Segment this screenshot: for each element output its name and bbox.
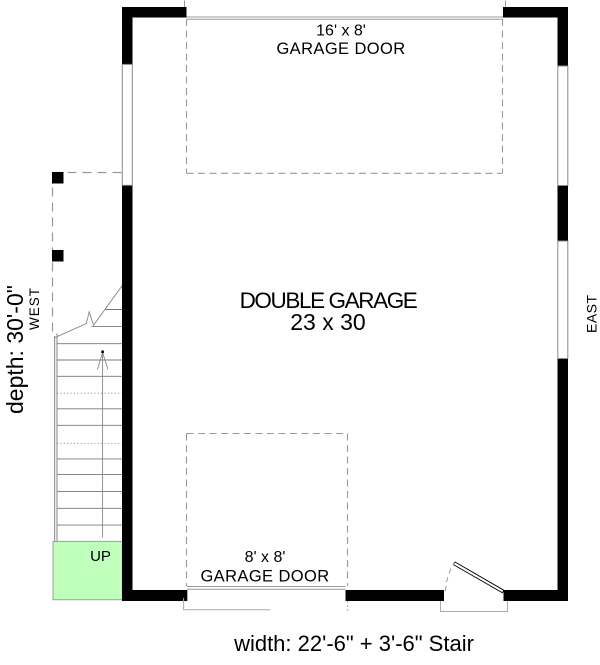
svg-text:UP: UP [90, 548, 111, 565]
svg-text:8' x 8': 8' x 8' [245, 549, 286, 566]
svg-text:GARAGE DOOR: GARAGE DOOR [200, 568, 329, 586]
svg-text:EAST: EAST [584, 294, 600, 333]
svg-text:GARAGE DOOR: GARAGE DOOR [276, 40, 405, 58]
svg-text:16' x 8': 16' x 8' [316, 23, 366, 40]
svg-text:width: 22'-6" + 3'-6" Stair: width: 22'-6" + 3'-6" Stair [233, 631, 474, 656]
svg-text:23 x 30: 23 x 30 [290, 309, 365, 335]
svg-text:depth: 30'-0": depth: 30'-0" [2, 285, 28, 414]
svg-text:WEST: WEST [27, 287, 42, 330]
